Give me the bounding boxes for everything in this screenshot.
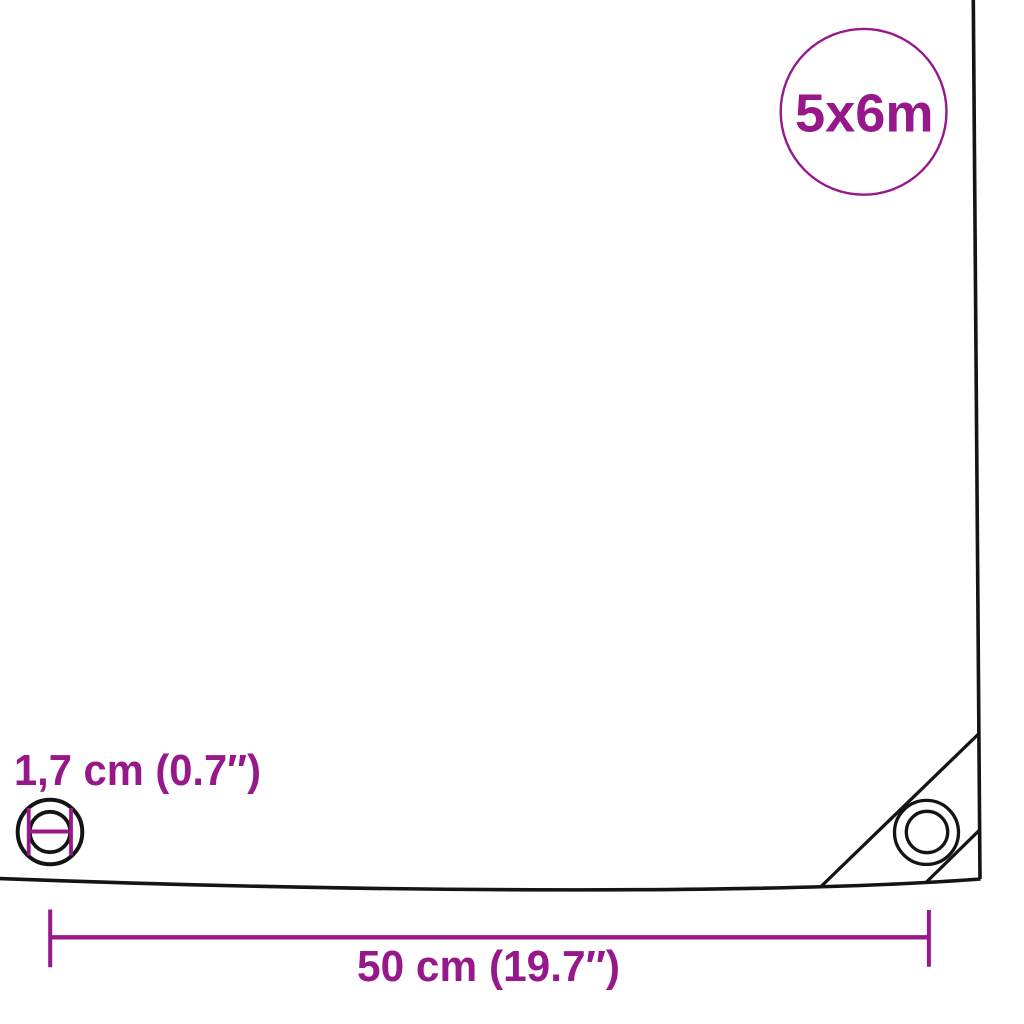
svg-text:1,7 cm (0.7″): 1,7 cm (0.7″) xyxy=(14,747,261,795)
svg-text:5x6m: 5x6m xyxy=(795,83,934,143)
svg-text:50 cm (19.7″): 50 cm (19.7″) xyxy=(357,943,620,991)
